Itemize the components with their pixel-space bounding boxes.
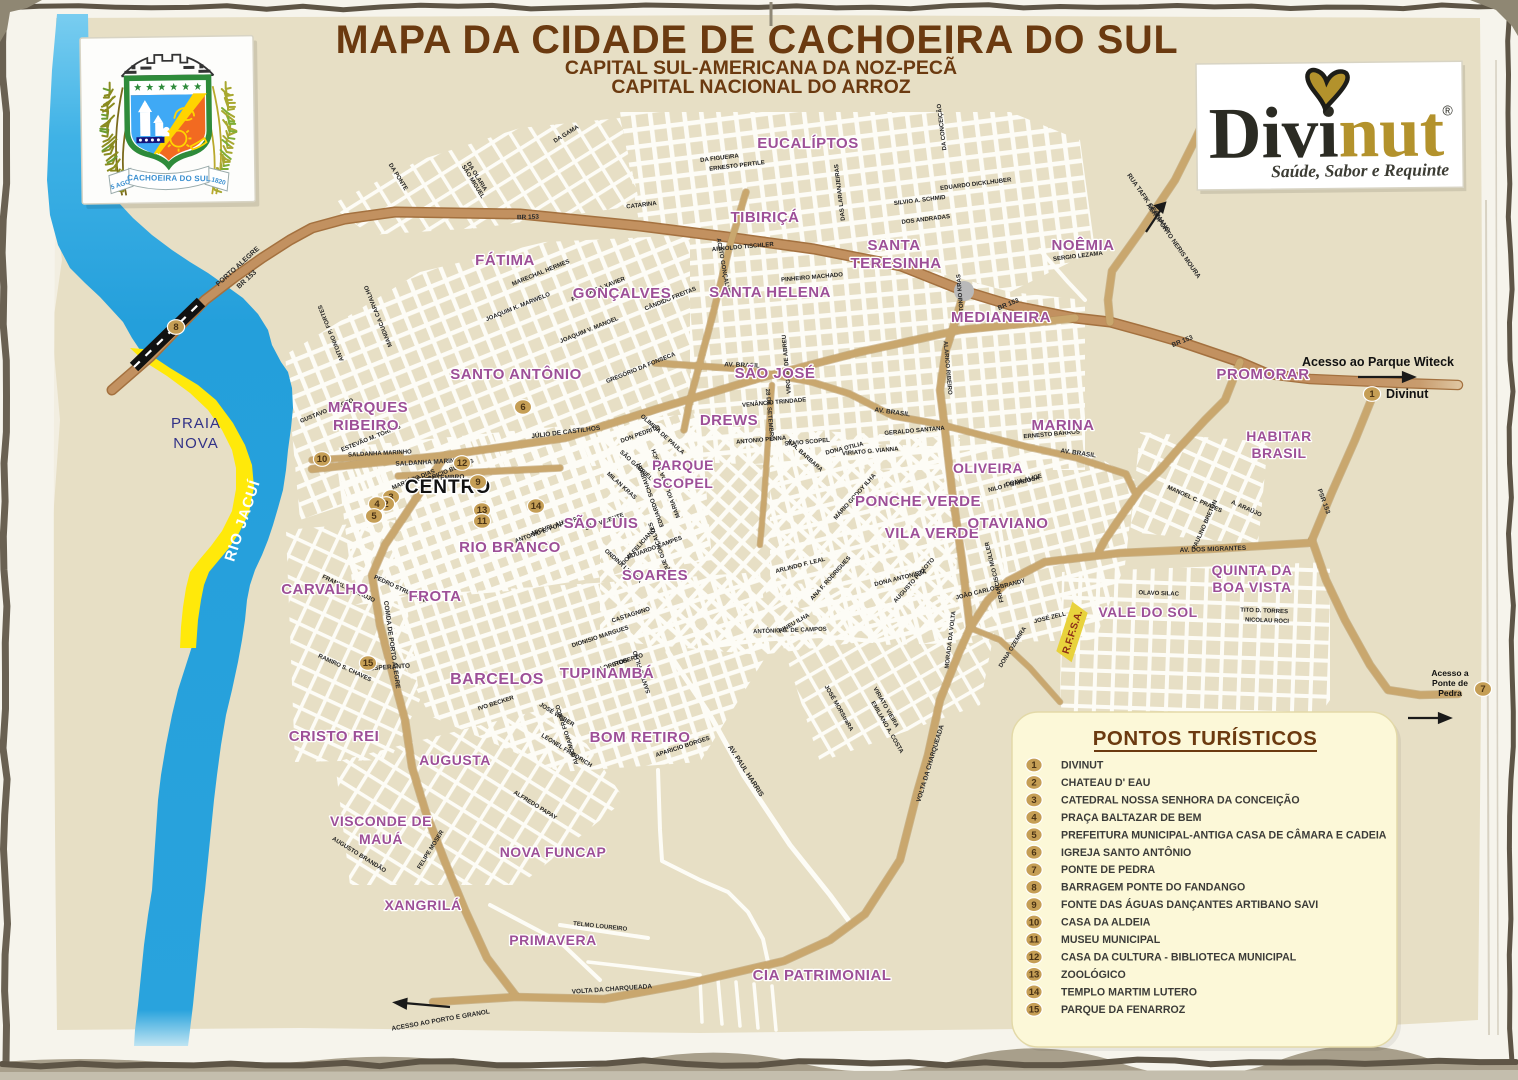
svg-text:MEDIANEIRA: MEDIANEIRA (951, 309, 1051, 326)
svg-text:OLIVEIRA: OLIVEIRA (953, 460, 1023, 476)
svg-text:DREWS: DREWS (700, 412, 758, 429)
svg-text:BARRAGEM PONTE DO FANDANGO: BARRAGEM PONTE DO FANDANGO (1061, 882, 1245, 894)
svg-text:10: 10 (1029, 917, 1040, 928)
svg-text:Acesso ao Parque Witeck: Acesso ao Parque Witeck (1302, 355, 1454, 369)
svg-text:TEMPLO MARTIM LUTERO: TEMPLO MARTIM LUTERO (1061, 986, 1197, 998)
svg-text:6: 6 (520, 402, 525, 413)
svg-text:CRISTO REI: CRISTO REI (289, 728, 380, 745)
svg-text:RIO BRANCO: RIO BRANCO (459, 539, 561, 556)
svg-text:CIA PATRIMONIAL: CIA PATRIMONIAL (753, 967, 892, 984)
svg-text:AUGUSTA: AUGUSTA (419, 752, 491, 768)
svg-text:BR 153: BR 153 (517, 214, 540, 222)
svg-text:11: 11 (477, 516, 488, 527)
svg-text:CASA DA CULTURA - BIBLIOTECA M: CASA DA CULTURA - BIBLIOTECA MUNICIPAL (1061, 951, 1297, 963)
svg-text:2: 2 (1031, 778, 1036, 789)
svg-text:EUCALÍPTOS: EUCALÍPTOS (757, 135, 858, 152)
svg-text:ZOOLÓGICO: ZOOLÓGICO (1061, 968, 1126, 981)
svg-text:VILA VERDE: VILA VERDE (885, 525, 979, 542)
svg-text:Saúde, Sabor e Requinte: Saúde, Sabor e Requinte (1271, 159, 1449, 181)
svg-text:BARCELOS: BARCELOS (450, 671, 544, 688)
svg-text:CATEDRAL NOSSA SENHORA DA CONC: CATEDRAL NOSSA SENHORA DA CONCEIÇÃO (1061, 793, 1300, 806)
svg-text:7: 7 (1031, 865, 1036, 876)
svg-text:6: 6 (1031, 847, 1036, 858)
svg-text:MARINA: MARINA (1032, 417, 1095, 434)
svg-text:FONTE DAS ÁGUAS DANÇANTES ARTI: FONTE DAS ÁGUAS DANÇANTES ARTIBANO SAVI (1061, 898, 1318, 911)
svg-text:MUSEU MUNICIPAL: MUSEU MUNICIPAL (1061, 934, 1161, 946)
svg-text:1: 1 (1369, 389, 1375, 400)
svg-text:3: 3 (1031, 795, 1036, 806)
svg-text:IGREJA SANTO ANTÔNIO: IGREJA SANTO ANTÔNIO (1061, 846, 1191, 859)
svg-text:9: 9 (475, 477, 480, 488)
svg-text:12: 12 (457, 458, 468, 469)
svg-text:CHATEAU D' EAU: CHATEAU D' EAU (1061, 777, 1150, 789)
svg-text:SÃO JOSÉ: SÃO JOSÉ (735, 364, 816, 382)
svg-text:Acesso a: Acesso a (1431, 668, 1469, 678)
svg-text:Divinut: Divinut (1386, 387, 1429, 401)
svg-text:TIBIRIÇÁ: TIBIRIÇÁ (731, 209, 800, 226)
svg-text:15: 15 (363, 658, 374, 669)
svg-text:BOM RETIRO: BOM RETIRO (590, 729, 691, 746)
svg-text:SANTO ANTÔNIO: SANTO ANTÔNIO (450, 365, 582, 383)
svg-text:5: 5 (371, 511, 377, 522)
svg-text:CARVALHO: CARVALHO (281, 581, 369, 598)
svg-text:4: 4 (1031, 813, 1037, 824)
svg-text:FROTA: FROTA (408, 588, 461, 605)
svg-text:SÃO LUIS: SÃO LUIS (564, 514, 639, 532)
svg-text:VALE DO SOL: VALE DO SOL (1098, 604, 1197, 620)
svg-text:TERESINHA: TERESINHA (850, 255, 941, 272)
svg-text:PARQUE DA FENARROZ: PARQUE DA FENARROZ (1061, 1004, 1186, 1016)
svg-text:PRIMAVERA: PRIMAVERA (509, 932, 596, 948)
svg-text:5: 5 (1031, 830, 1037, 841)
svg-text:NOÊMIA: NOÊMIA (1052, 236, 1115, 254)
svg-text:RIBEIRO: RIBEIRO (333, 417, 399, 434)
svg-text:GONÇALVES: GONÇALVES (573, 285, 671, 302)
svg-text:CACHOEIRA DO SUL: CACHOEIRA DO SUL (127, 173, 211, 183)
svg-text:MAUÁ: MAUÁ (359, 831, 403, 847)
svg-text:CASA DA ALDEIA: CASA DA ALDEIA (1061, 917, 1151, 929)
svg-text:PONCHE VERDE: PONCHE VERDE (855, 493, 981, 510)
svg-text:8: 8 (173, 322, 178, 333)
svg-text:VISCONDE DE: VISCONDE DE (330, 813, 432, 829)
svg-text:SCOPEL: SCOPEL (653, 475, 714, 491)
svg-text:NOVA: NOVA (173, 435, 218, 452)
svg-text:Ponte de: Ponte de (1432, 678, 1468, 688)
svg-text:SOARES: SOARES (622, 567, 688, 584)
svg-text:XANGRILÁ: XANGRILÁ (384, 897, 461, 913)
svg-text:12: 12 (1029, 952, 1040, 963)
svg-text:SANTA: SANTA (867, 237, 920, 254)
svg-text:PONTE DE PEDRA: PONTE DE PEDRA (1061, 864, 1156, 876)
svg-text:11: 11 (1029, 935, 1040, 946)
svg-text:PRAÇA BALTAZAR DE BEM: PRAÇA BALTAZAR DE BEM (1061, 812, 1202, 824)
svg-text:HABITAR: HABITAR (1246, 428, 1311, 444)
svg-text:15: 15 (1029, 1005, 1040, 1016)
svg-text:1: 1 (1031, 760, 1037, 771)
svg-text:BRASIL: BRASIL (1251, 445, 1306, 461)
svg-text:14: 14 (1029, 987, 1040, 998)
svg-text:Pedra: Pedra (1438, 688, 1462, 698)
svg-text:PARQUE: PARQUE (652, 457, 714, 473)
svg-text:MAPA DA CIDADE DE CACHOEIRA DO: MAPA DA CIDADE DE CACHOEIRA DO SUL (336, 18, 1179, 62)
svg-text:OTAVIANO: OTAVIANO (968, 515, 1049, 532)
svg-text:®: ® (1442, 102, 1453, 118)
svg-text:MARQUES: MARQUES (328, 399, 408, 416)
svg-text:10: 10 (317, 454, 328, 465)
svg-text:QUINTA DA: QUINTA DA (1212, 562, 1293, 578)
svg-text:7: 7 (1480, 684, 1485, 695)
svg-text:14: 14 (531, 501, 542, 512)
svg-text:13: 13 (1029, 970, 1040, 981)
svg-text:PREFEITURA MUNICIPAL-ANTIGA CA: PREFEITURA MUNICIPAL-ANTIGA CASA DE CÂMA… (1061, 828, 1387, 841)
svg-text:PRAIA: PRAIA (171, 415, 221, 432)
svg-text:SANTA HELENA: SANTA HELENA (709, 284, 831, 301)
svg-text:PROMORAR: PROMORAR (1216, 366, 1309, 383)
svg-text:DIVINUT: DIVINUT (1061, 760, 1104, 772)
svg-text:TUPINAMBÁ: TUPINAMBÁ (560, 665, 655, 682)
svg-text:BOA VISTA: BOA VISTA (1212, 579, 1291, 595)
svg-text:9: 9 (1031, 900, 1036, 911)
svg-text:PONTOS TURÍSTICOS: PONTOS TURÍSTICOS (1093, 727, 1318, 750)
svg-text:8: 8 (1031, 882, 1036, 893)
svg-text:FÁTIMA: FÁTIMA (475, 252, 535, 269)
svg-text:CAPITAL NACIONAL DO ARROZ: CAPITAL NACIONAL DO ARROZ (611, 76, 910, 98)
svg-text:NOVA FUNCAP: NOVA FUNCAP (500, 844, 607, 860)
